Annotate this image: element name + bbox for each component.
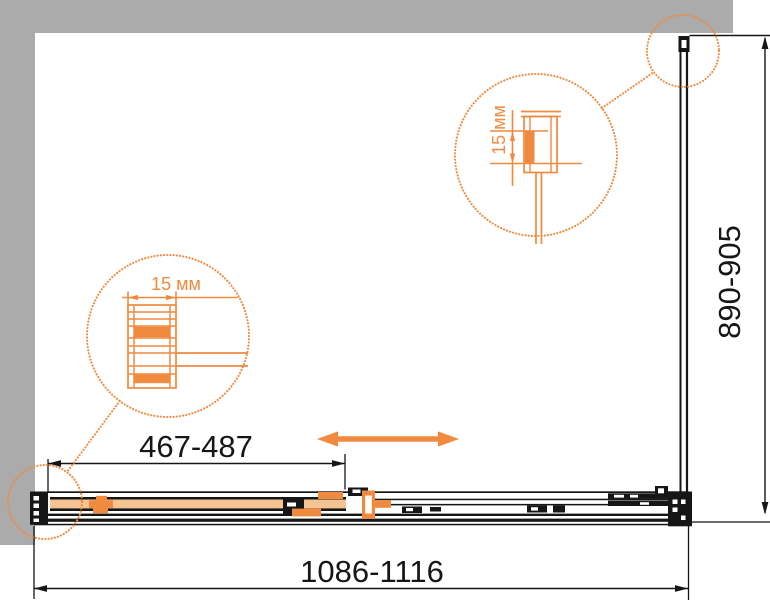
- arrow-down-icon: [510, 154, 515, 164]
- detail-top-label: 15 мм: [489, 105, 509, 155]
- detail-leader-line: [67, 401, 120, 472]
- wall-strip-top: [0, 0, 733, 33]
- wall-profile-side-panel: [679, 36, 690, 494]
- detail-left-label: 15 мм: [151, 274, 201, 294]
- width-dimension: 1086-1116: [34, 526, 689, 600]
- detail-leader-line: [602, 72, 654, 108]
- arrow-right-icon: [332, 460, 345, 467]
- arrow-right-icon: [675, 585, 688, 592]
- slide-direction-arrow-icon: [317, 431, 459, 446]
- arrow-down-icon: [762, 502, 769, 515]
- width-dimension-label: 1086-1116: [300, 554, 444, 589]
- arrow-left-icon: [128, 295, 138, 300]
- detail-left-content: 15 мм: [122, 274, 248, 388]
- panel-dimension-label: 467-487: [139, 429, 253, 464]
- technical-drawing-page: 890-905: [0, 0, 770, 600]
- arrow-right-icon: [166, 295, 176, 300]
- shower-door-technical-drawing: 890-905: [0, 0, 770, 600]
- profile-section-left: [128, 305, 176, 388]
- right-wall-bracket: [668, 492, 692, 527]
- height-dimension-label: 890-905: [712, 225, 747, 339]
- arrow-left-icon: [34, 585, 47, 592]
- arrow-up-icon: [510, 131, 515, 141]
- door-assembly-plan: [30, 486, 692, 526]
- wall-strip-left: [0, 0, 35, 545]
- panel-dimension: 467-487: [48, 429, 345, 492]
- detail-top-content: 15 мм: [489, 105, 582, 244]
- height-dimension: 890-905: [690, 36, 770, 523]
- arrow-up-icon: [762, 37, 769, 50]
